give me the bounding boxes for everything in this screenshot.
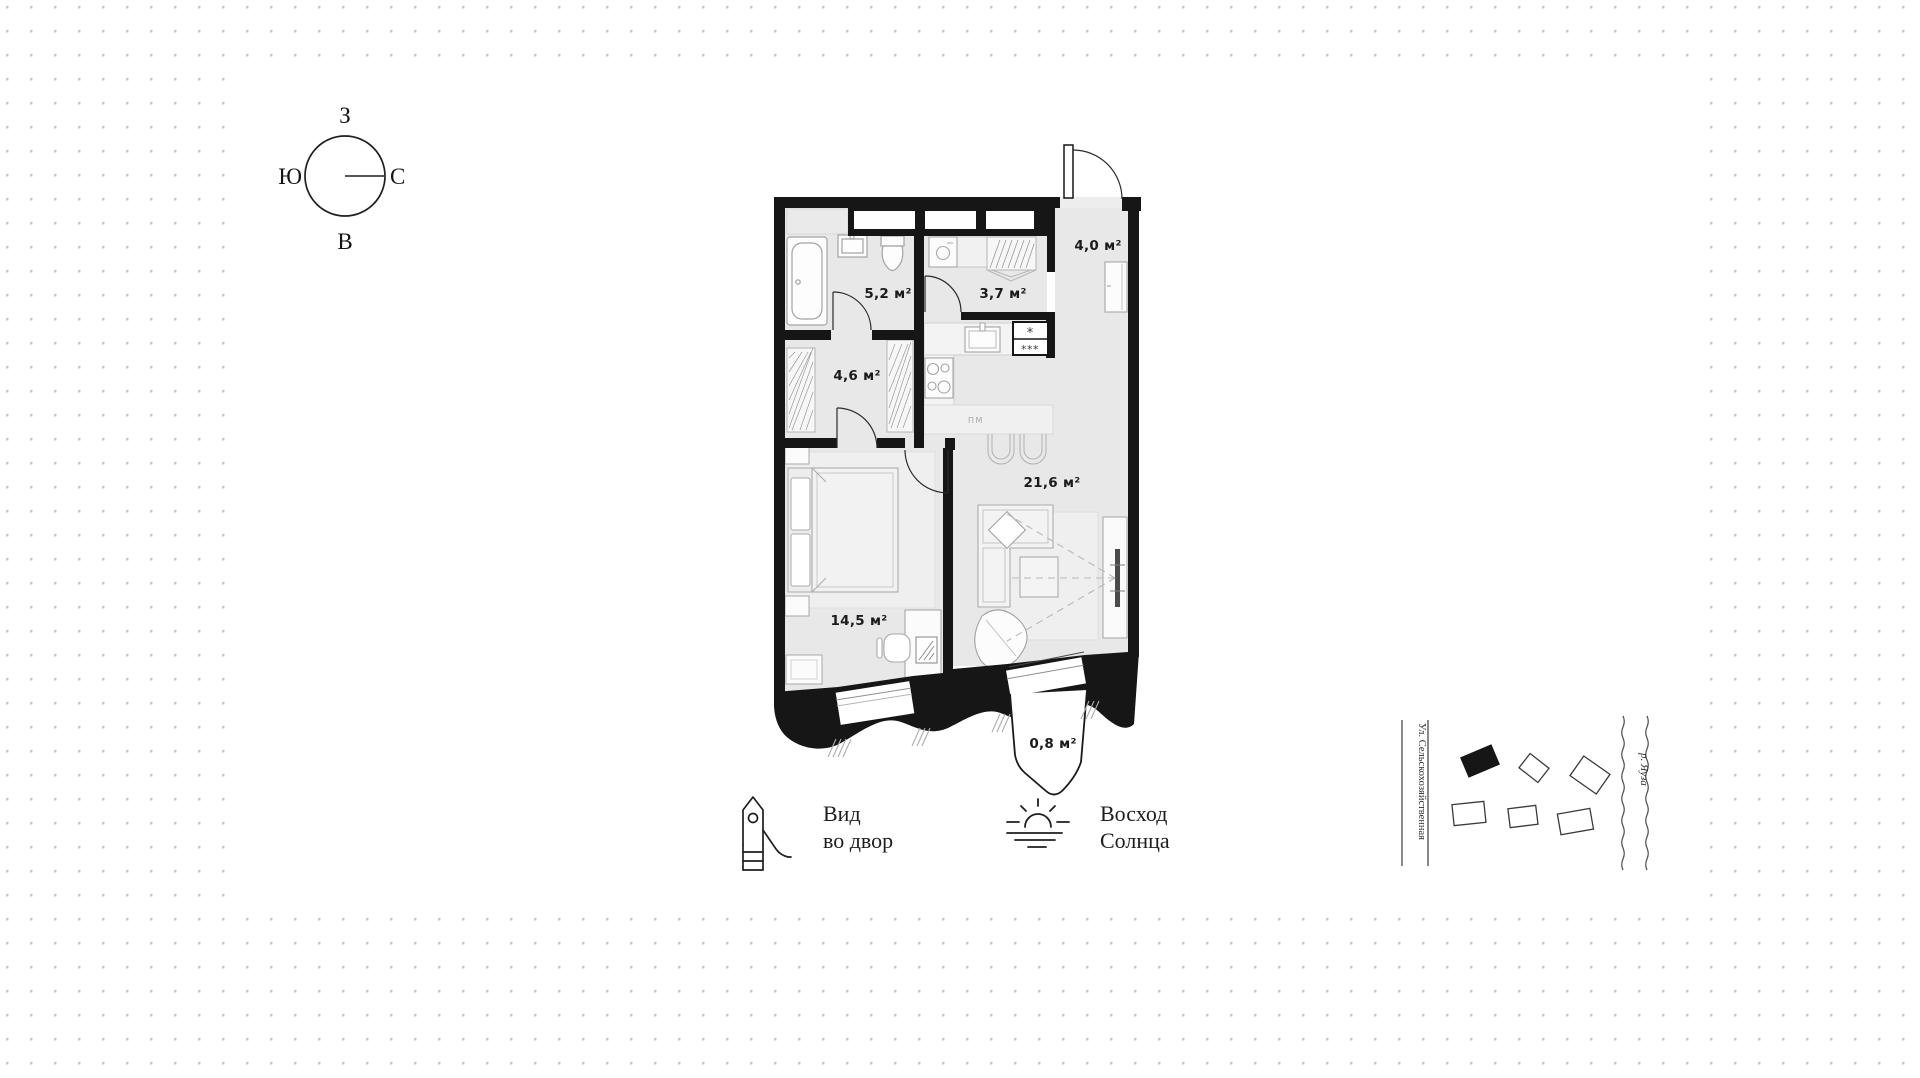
bathroom-niche <box>787 209 848 234</box>
entry-cabinet <box>1105 262 1127 312</box>
wall-kitchen-top <box>961 312 1055 320</box>
legend-courtyard-line1: Вид <box>823 800 893 827</box>
building-icon <box>1557 808 1593 834</box>
fridge-stars-label: *** <box>1021 343 1039 356</box>
sunrise-icon <box>1000 792 1080 854</box>
coffee-table-icon <box>1020 557 1058 597</box>
legend-sunrise-line2: Солнца <box>1100 827 1170 854</box>
area-label-bathroom: 5,2 м² <box>864 286 911 302</box>
building-icon <box>1519 754 1549 783</box>
computer-icon <box>916 637 937 663</box>
chair-icon <box>884 634 910 662</box>
door-entry <box>1064 145 1122 199</box>
wall-corridor-hall <box>1047 197 1055 272</box>
compass-label-east: В <box>337 229 352 254</box>
area-label-entry: 4,0 м² <box>1074 238 1121 254</box>
site-buildings <box>1452 744 1610 835</box>
area-label-wardrobe: 4,6 м² <box>833 368 880 384</box>
legend-courtyard-line2: во двор <box>823 827 893 854</box>
bathtub-icon <box>787 237 827 325</box>
wall-right <box>1128 197 1139 657</box>
compass: З Ю С В <box>270 90 430 265</box>
kitchen-sink-icon <box>965 323 1000 352</box>
area-label-corridor: 3,7 м² <box>979 286 1026 302</box>
building-icon <box>1452 801 1486 825</box>
wall-left <box>774 197 785 707</box>
area-label-kitchen-living: 21,6 м² <box>1023 475 1080 491</box>
building-icon <box>1508 805 1538 827</box>
wall-top <box>774 197 1060 208</box>
compass-label-north: С <box>390 164 405 189</box>
fridge-star-label: * <box>1027 326 1034 341</box>
area-label-balcony: 0,8 м² <box>1029 736 1076 752</box>
bed-icon <box>788 468 898 592</box>
fridge-icon: * *** <box>1013 322 1048 356</box>
legend-sunrise: Восход Солнца <box>1100 800 1170 854</box>
area-label-bedroom: 14,5 м² <box>830 613 887 629</box>
toilet-icon <box>881 236 904 246</box>
washing-machine-icon <box>929 237 957 267</box>
river-name-label: р. Яуза <box>1638 752 1650 786</box>
building-icon <box>1570 756 1610 794</box>
closet-left-icon <box>787 348 815 432</box>
legend-courtyard-view: Вид во двор <box>823 800 893 854</box>
compass-label-west: З <box>339 103 351 128</box>
wall-spine <box>914 207 924 448</box>
legend-sunrise-line1: Восход <box>1100 800 1170 827</box>
dishwasher-label: ПМ <box>968 416 984 425</box>
stove-icon <box>925 358 953 398</box>
tv-icon <box>1115 549 1120 607</box>
nightstand-icon <box>785 596 809 616</box>
floor-plan: ПМ <box>760 135 1160 880</box>
subject-building-icon <box>1460 744 1500 778</box>
ventilation-shafts <box>853 210 1035 230</box>
compass-label-south: Ю <box>278 164 302 189</box>
site-map: Ул. Сельскохозяйственная р. Яуза <box>1390 700 1680 880</box>
kitchen-island <box>924 405 1053 434</box>
playground-slide-icon <box>730 790 800 880</box>
river-lines <box>1622 716 1649 870</box>
street-name-label: Ул. Сельскохозяйственная <box>1416 723 1427 840</box>
